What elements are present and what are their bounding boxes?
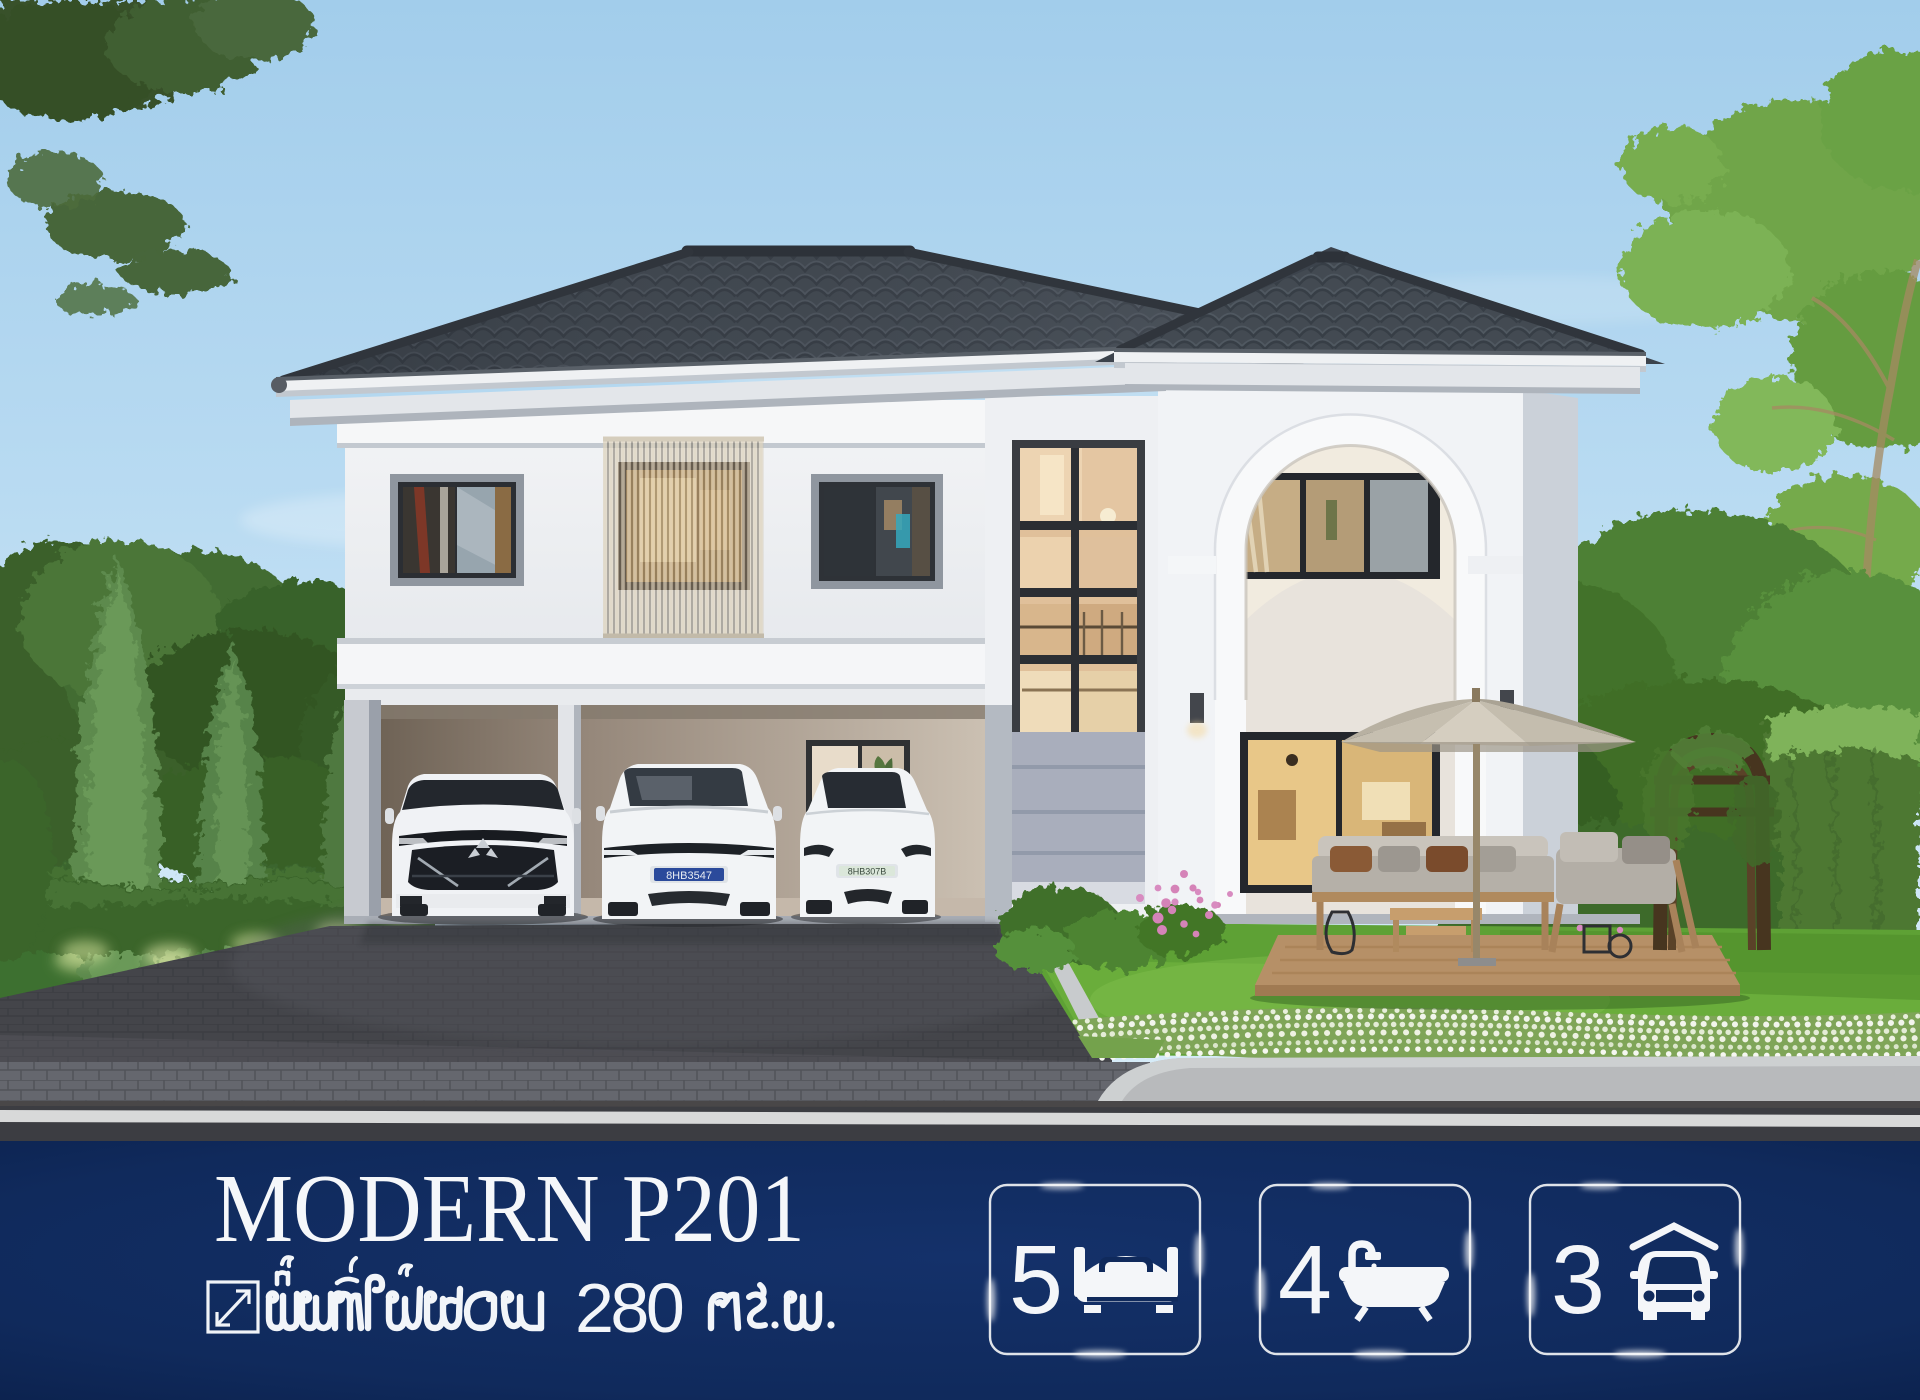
svg-text:280: 280 — [575, 1269, 683, 1347]
svg-text:4: 4 — [1278, 1225, 1332, 1334]
svg-text:8HB3547: 8HB3547 — [666, 870, 712, 882]
svg-text:3: 3 — [1551, 1225, 1605, 1334]
svg-text:MODERN P201: MODERN P201 — [214, 1155, 805, 1263]
svg-text:8HB307B: 8HB307B — [848, 867, 887, 877]
svg-text:5: 5 — [1009, 1225, 1063, 1334]
